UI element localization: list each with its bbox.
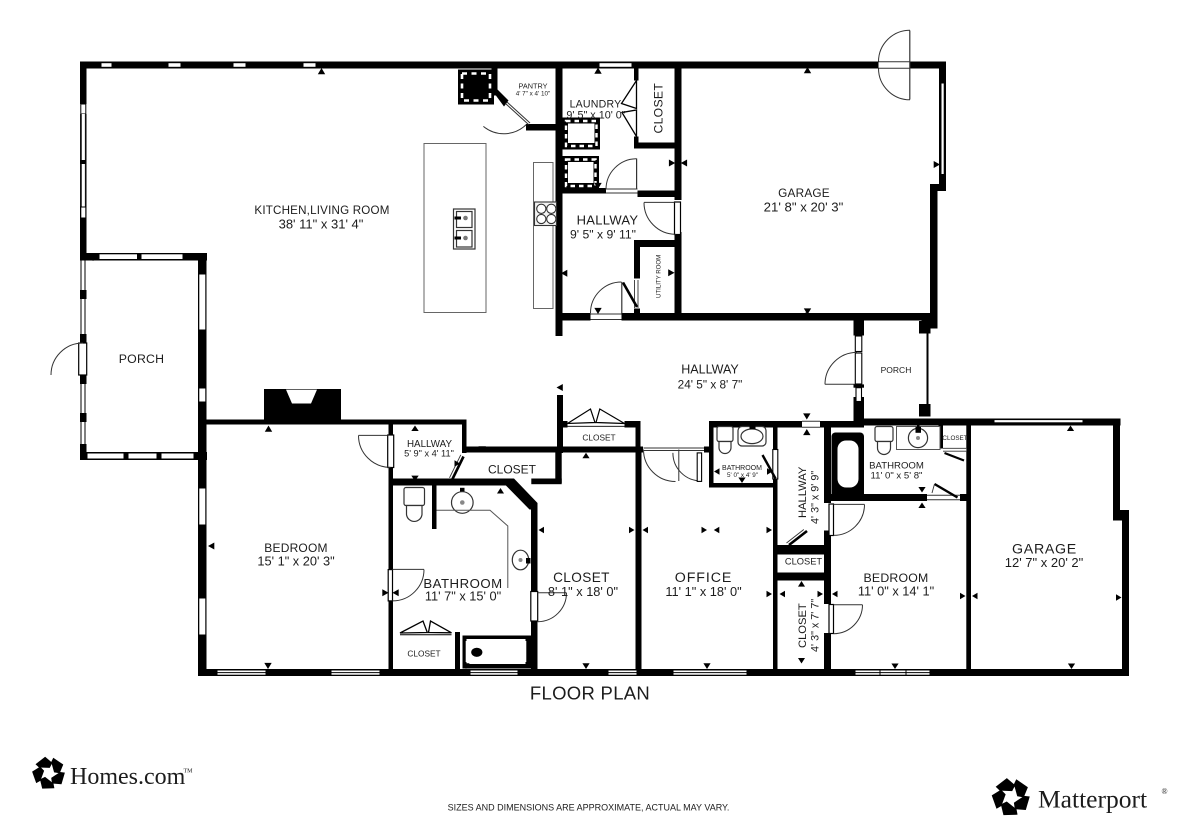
svg-text:CLOSET: CLOSET <box>652 83 666 134</box>
svg-text:11' 0" x 14' 1": 11' 0" x 14' 1" <box>858 584 934 599</box>
svg-text:11' 0" x 5' 8": 11' 0" x 5' 8" <box>871 471 923 482</box>
svg-text:CLOSET: CLOSET <box>797 603 809 648</box>
svg-text:24' 5" x 8' 7": 24' 5" x 8' 7" <box>678 378 743 392</box>
svg-text:5' 0" x 4' 9": 5' 0" x 4' 9" <box>727 472 758 479</box>
svg-text:4' 3" x 9' 9": 4' 3" x 9' 9" <box>810 471 822 524</box>
svg-text:HALLWAY: HALLWAY <box>577 213 639 228</box>
svg-text:CLOSET: CLOSET <box>488 463 537 477</box>
svg-text:9' 5" x 10' 0": 9' 5" x 10' 0" <box>566 110 625 122</box>
svg-text:5' 9" x 4' 11": 5' 9" x 4' 11" <box>404 449 454 459</box>
svg-text:CLOSET: CLOSET <box>785 557 823 567</box>
svg-text:CLOSET: CLOSET <box>407 649 440 659</box>
svg-text:12' 7" x 20' 2": 12' 7" x 20' 2" <box>1005 555 1084 570</box>
svg-text:8' 1" x 18' 0": 8' 1" x 18' 0" <box>548 584 618 599</box>
svg-text:21' 8" x 20' 3": 21' 8" x 20' 3" <box>764 200 844 215</box>
svg-text:Homes.com: Homes.com <box>70 764 186 790</box>
svg-text:BATHROOM: BATHROOM <box>722 465 762 472</box>
svg-text:4' 3" x 7' 7": 4' 3" x 7' 7" <box>810 599 822 652</box>
svg-text:4' 7" x 4' 10": 4' 7" x 4' 10" <box>516 91 551 98</box>
svg-text:Matterport: Matterport <box>1038 785 1147 814</box>
svg-text:11' 1" x 18' 0": 11' 1" x 18' 0" <box>665 584 741 599</box>
svg-text:HALLWAY: HALLWAY <box>797 466 809 518</box>
svg-text:TM: TM <box>184 769 194 775</box>
svg-text:®: ® <box>1162 787 1168 796</box>
svg-text:CLOSET: CLOSET <box>942 435 967 442</box>
svg-text:9' 5" x 9' 11": 9' 5" x 9' 11" <box>570 228 636 242</box>
svg-text:FLOOR PLAN: FLOOR PLAN <box>530 683 650 704</box>
svg-text:CLOSET: CLOSET <box>553 570 610 585</box>
svg-text:UTILITY ROOM: UTILITY ROOM <box>656 255 663 298</box>
svg-text:PANTRY: PANTRY <box>519 82 548 91</box>
svg-text:CLOSET: CLOSET <box>582 433 615 443</box>
svg-text:PORCH: PORCH <box>881 365 912 375</box>
svg-text:38' 11" x 31' 4": 38' 11" x 31' 4" <box>279 217 364 232</box>
svg-text:11' 7" x 15' 0": 11' 7" x 15' 0" <box>425 589 501 604</box>
svg-text:PORCH: PORCH <box>119 352 164 366</box>
svg-text:KITCHEN,LIVING ROOM: KITCHEN,LIVING ROOM <box>254 204 389 217</box>
svg-text:15' 1" x 20' 3": 15' 1" x 20' 3" <box>257 554 334 569</box>
svg-text:HALLWAY: HALLWAY <box>681 363 739 377</box>
svg-text:GARAGE: GARAGE <box>778 186 830 200</box>
svg-text:SIZES AND DIMENSIONS ARE APPRO: SIZES AND DIMENSIONS ARE APPROXIMATE, AC… <box>448 803 730 813</box>
